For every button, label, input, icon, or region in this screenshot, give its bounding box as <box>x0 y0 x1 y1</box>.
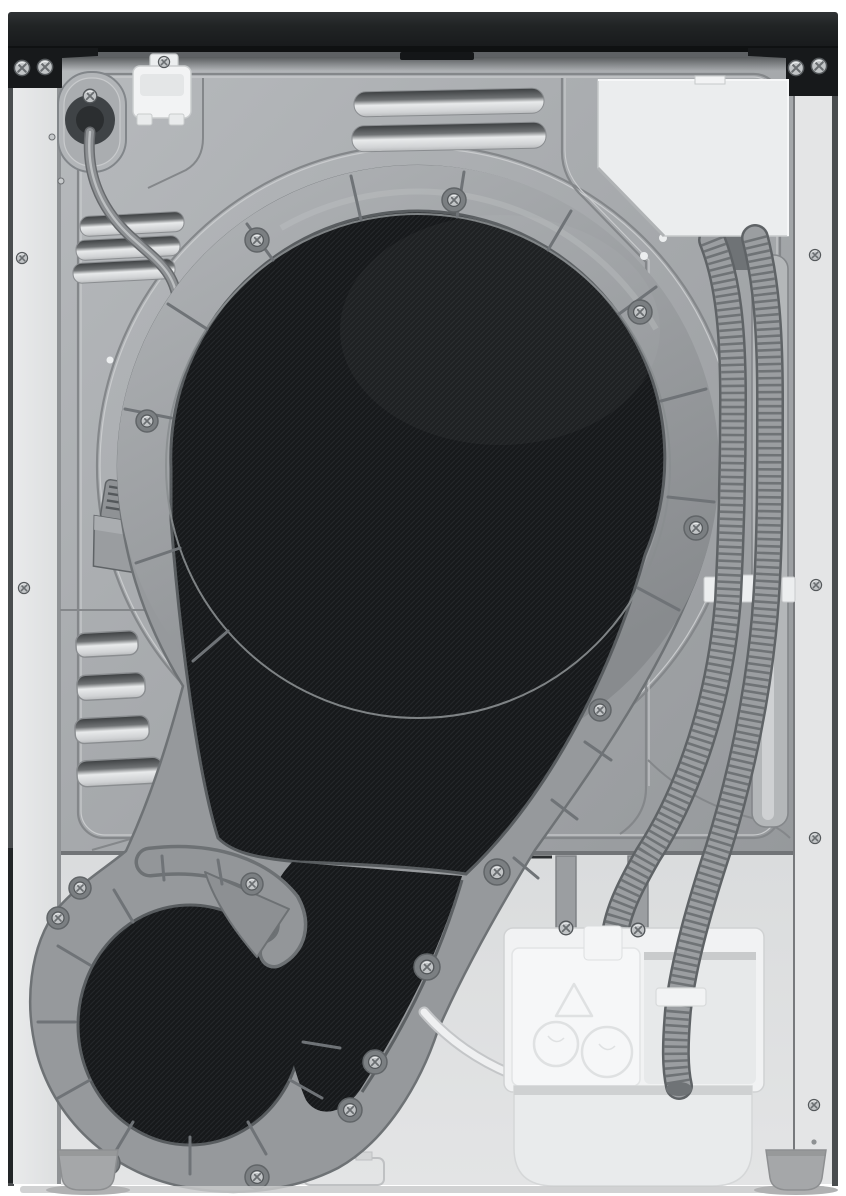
ground-shadow <box>20 1186 826 1193</box>
right-edge-strip <box>795 52 832 1184</box>
hose-clip-lower <box>656 988 706 1006</box>
trim-center-notch <box>400 52 474 60</box>
box-inlet-notch <box>584 926 622 960</box>
condensate-tray <box>644 952 756 1084</box>
panel-pin <box>49 134 55 140</box>
condensate-box <box>504 921 764 1186</box>
photo-canvas <box>0 0 846 1196</box>
box-lower-tub <box>514 1086 752 1186</box>
panel-pin <box>58 178 64 184</box>
right-body-sliver <box>832 58 838 1186</box>
tub-lip-shadow <box>514 1086 752 1095</box>
panel-hole <box>811 1139 816 1144</box>
dryer-rear-photo <box>0 0 846 1196</box>
